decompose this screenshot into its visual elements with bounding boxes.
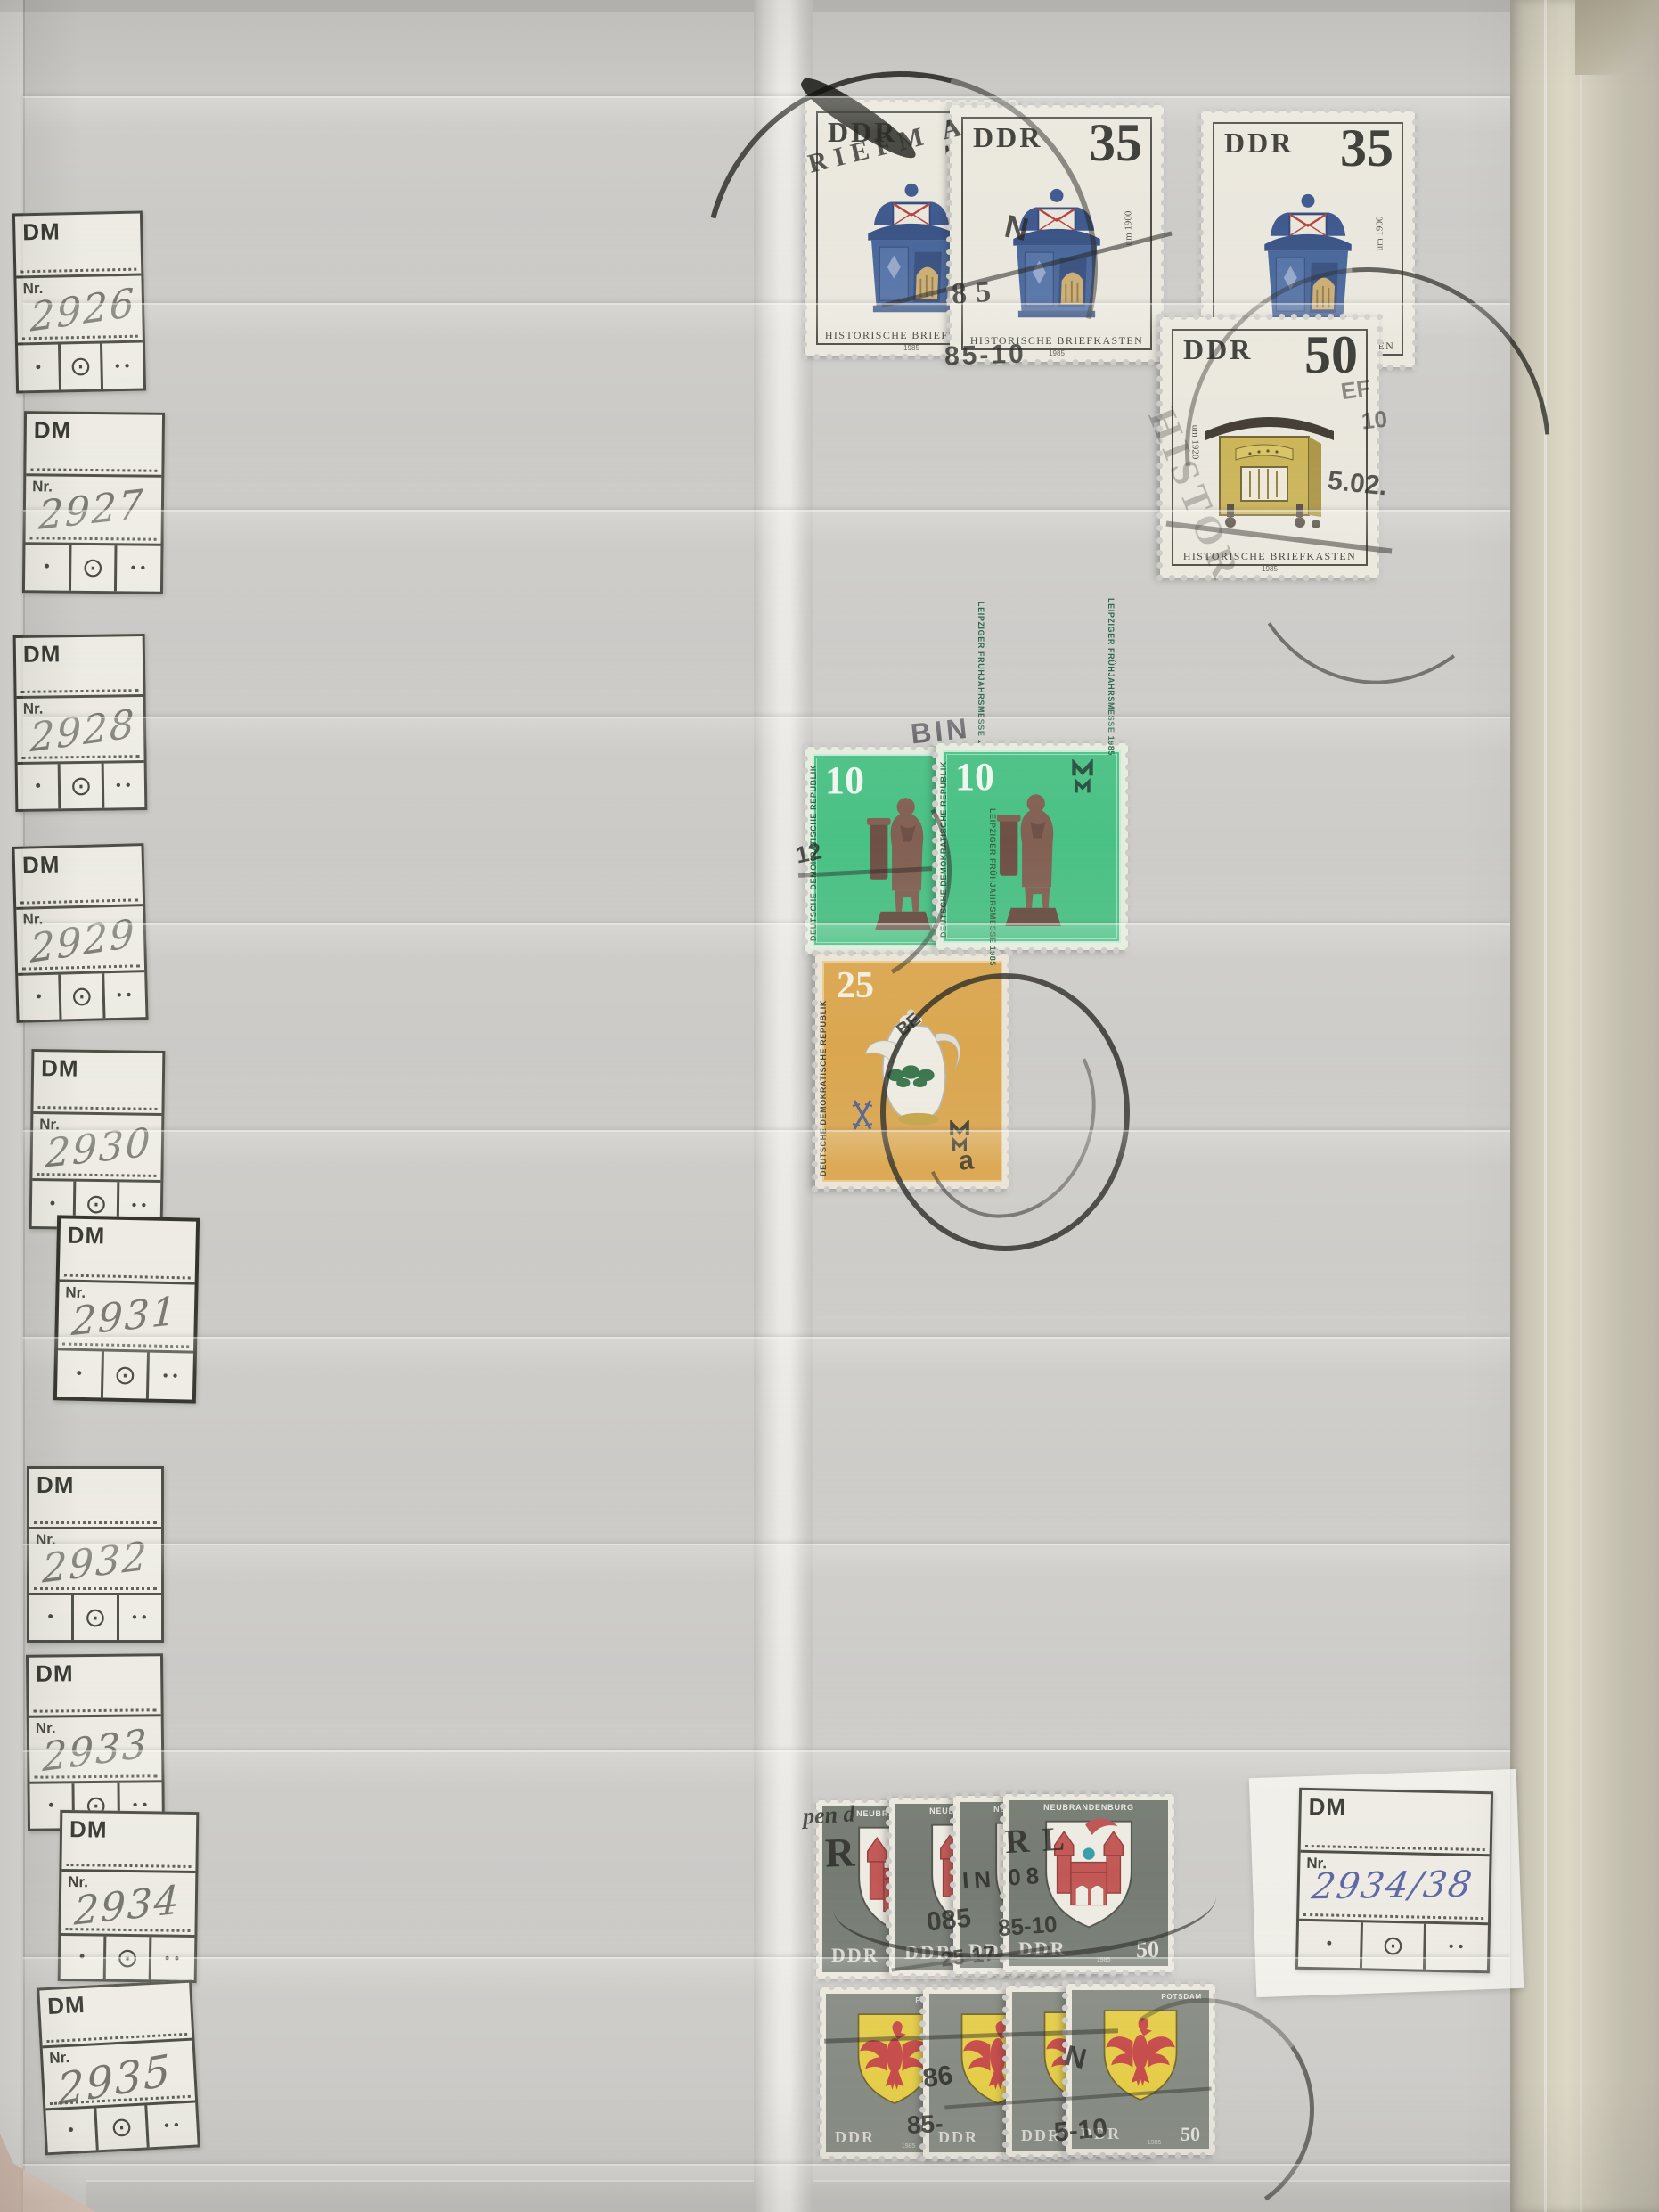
used-symbol-cell: ⊙ — [101, 1351, 148, 1398]
price-label: DM Nr. 2926 • ⊙ •• — [12, 210, 146, 393]
dotted-line — [64, 1274, 191, 1280]
stamp-messe-10: 10 — [936, 743, 1128, 950]
mint-symbol-cell: • — [25, 545, 69, 591]
mnh-symbol-cell: •• — [117, 1595, 161, 1640]
nr-box: Nr. 2926 — [16, 273, 143, 342]
dm-text: DM — [23, 640, 61, 668]
catalog-number-handwritten: 2934 — [73, 1878, 181, 1935]
mint-symbol: • — [42, 559, 51, 577]
dm-text: DM — [67, 1222, 105, 1250]
album-cover-corner — [1575, 0, 1659, 75]
country-text: DDR — [938, 2128, 978, 2147]
mailbox-illustration — [994, 187, 1119, 325]
glassine-interleaf — [1510, 0, 1659, 2212]
dm-box: DM — [29, 1469, 161, 1527]
nr-box: Nr. 2935 — [43, 2038, 195, 2109]
statue-illustration — [983, 782, 1081, 940]
dm-text: DM — [1308, 1793, 1346, 1822]
dm-box: DM — [60, 1218, 196, 1282]
condition-symbols-row: • ⊙ •• — [18, 760, 145, 809]
issue-year: 1985 — [902, 2143, 916, 2150]
dm-text: DM — [41, 1054, 79, 1083]
series-caption: HISTORISCHE BRIEFKASTEN — [1160, 550, 1379, 563]
catalog-number-handwritten: 2931 — [70, 1289, 178, 1346]
dm-box: DM — [16, 636, 143, 696]
nr-box: Nr. 2932 — [29, 1527, 161, 1593]
dotted-line — [30, 469, 157, 472]
country-text-vertical: DEUTSCHE DEMOKRATISCHE REPUBLIK — [939, 761, 948, 938]
mnh-symbol: •• — [114, 777, 134, 793]
crossed-swords-graphic — [851, 1099, 874, 1133]
dotted-line — [37, 1173, 156, 1177]
used-symbol: ⊙ — [110, 2111, 134, 2143]
issue-year: 1985 — [1148, 2140, 1162, 2146]
price-label: DM Nr. 2934/38 • ⊙ •• — [1295, 1788, 1493, 1974]
mnh-symbol-cell: •• — [1423, 1923, 1488, 1970]
catalog-number-handwritten: 2927 — [38, 481, 146, 539]
postmark-circle — [880, 973, 1130, 1251]
price-label: DM Nr. 2935 • ⊙ •• — [37, 1980, 200, 2156]
glassine-crease — [1544, 0, 1547, 2212]
mnh-symbol: •• — [163, 1951, 183, 1967]
dm-text: DM — [36, 1659, 74, 1687]
dm-box: DM — [15, 214, 141, 276]
price-label: DM Nr. 2927 • ⊙ •• — [22, 411, 165, 594]
issue-year: 1985 — [1097, 1957, 1111, 1963]
price-label: DM Nr. 2933 • ⊙ •• — [26, 1653, 165, 1831]
dotted-line — [20, 689, 138, 693]
dotted-line — [34, 1587, 157, 1590]
mnh-symbol: •• — [1447, 1939, 1467, 1955]
goethe-statue-graphic — [983, 782, 1081, 936]
catalog-number-handwritten: 2930 — [45, 1119, 152, 1176]
mnh-symbol-cell: •• — [146, 1352, 193, 1399]
mint-symbol: • — [46, 1798, 55, 1815]
dotted-line — [1303, 1913, 1483, 1919]
price-label: DM Nr. 2934 • ⊙ •• — [58, 1810, 200, 1983]
condition-symbols-row: • ⊙ •• — [61, 1933, 195, 1980]
catalog-number-handwritten: 2933 — [42, 1721, 148, 1781]
dm-box: DM — [61, 1813, 196, 1871]
nr-box: Nr. 2934 — [61, 1869, 195, 1935]
mint-symbol-cell: • — [57, 1350, 102, 1397]
mint-symbol: • — [1325, 1936, 1334, 1954]
price-label: DM Nr. 2932 • ⊙ •• — [27, 1466, 164, 1643]
mailbox-illustration — [1246, 193, 1370, 331]
dotted-line — [34, 1521, 157, 1524]
country-text-vertical: DEUTSCHE DEMOKRATISCHE REPUBLIK — [819, 1000, 828, 1176]
country-text: DDR — [973, 121, 1042, 154]
used-symbol-cell: ⊙ — [59, 974, 103, 1020]
series-caption: HISTORISCHE BRIEFKASTEN — [950, 334, 1164, 348]
mint-symbol: • — [46, 1609, 55, 1626]
condition-symbols-row: • ⊙ •• — [18, 970, 145, 1020]
price-label: DM Nr. 2929 • ⊙ •• — [12, 843, 148, 1023]
mint-symbol: • — [34, 358, 43, 376]
used-symbol: ⊙ — [69, 770, 93, 801]
used-symbol: ⊙ — [70, 980, 94, 1012]
condition-symbols-row: • ⊙ •• — [57, 1348, 193, 1399]
dotted-line — [34, 1709, 157, 1713]
country-text: DDR — [1021, 2126, 1061, 2145]
mint-symbol-cell: • — [18, 975, 60, 1020]
mnh-symbol: •• — [130, 1610, 150, 1626]
city-name: NEUBRANDENBURG — [1009, 1803, 1168, 1812]
mnh-symbol: •• — [115, 987, 135, 1004]
mint-symbol: • — [34, 988, 44, 1006]
dotted-line — [30, 537, 157, 540]
denomination: 35 — [1340, 118, 1393, 179]
era-note: um 1900 — [1375, 217, 1385, 251]
mnh-symbol-cell: •• — [144, 2103, 197, 2148]
price-label: DM Nr. 2931 • ⊙ •• — [53, 1215, 200, 1403]
catalog-number-handwritten: 2926 — [30, 280, 136, 341]
nr-box: Nr. 2933 — [29, 1714, 162, 1782]
catalog-number-handwritten: 2934/38 — [1309, 1864, 1476, 1908]
event-text-vertical: LEIPZIGER FRÜHJAHRSMESSE 1985 — [977, 602, 985, 759]
dotted-line — [34, 1775, 157, 1779]
mnh-symbol-cell: •• — [102, 972, 146, 1018]
mnh-symbol-cell: •• — [101, 763, 144, 807]
meissen-swords-mark — [851, 1099, 874, 1137]
mint-symbol: • — [75, 1365, 84, 1383]
catalog-number-handwritten: 2929 — [30, 911, 136, 972]
country-text: DDR — [1224, 127, 1294, 160]
mint-symbol-cell: • — [1298, 1921, 1361, 1968]
mnh-symbol-cell: •• — [100, 343, 143, 389]
mailbox-graphic — [1246, 193, 1370, 326]
country-text: DDR — [831, 1944, 879, 1967]
mnh-symbol: •• — [161, 1368, 181, 1384]
dotted-line — [22, 755, 140, 759]
country-text: DDR — [835, 2128, 875, 2147]
used-symbol: ⊙ — [81, 553, 104, 584]
denomination: 35 — [1089, 112, 1142, 174]
condition-symbols-row: • ⊙ •• — [1298, 1918, 1488, 1970]
country-text: DDR — [1183, 333, 1253, 366]
mnh-symbol-cell: •• — [149, 1937, 195, 1980]
dm-text: DM — [22, 851, 61, 880]
mnh-symbol: •• — [113, 357, 133, 373]
nr-box: Nr. 2927 — [26, 474, 162, 544]
mint-symbol: • — [33, 778, 42, 796]
stamp-print-area: POTSDAM DDR 50 1985 — [1072, 1990, 1209, 2149]
stamp-wappen-potsdam: POTSDAM DDR 50 1985 — [1066, 1984, 1215, 2155]
mint-symbol-cell: • — [61, 1936, 104, 1979]
nr-box: Nr. 2930 — [32, 1111, 161, 1181]
mint-symbol-cell: • — [29, 1595, 71, 1640]
glassine-crease — [1580, 0, 1582, 2212]
nr-box: Nr. 2934/38 — [1299, 1850, 1490, 1922]
mnh-symbol-cell: •• — [114, 545, 160, 592]
era-note: um 1920 — [1189, 425, 1200, 460]
denomination: 50 — [1304, 324, 1358, 386]
catalog-number-handwritten: 2932 — [42, 1534, 149, 1593]
dotted-line — [62, 1343, 189, 1348]
used-symbol: ⊙ — [69, 351, 93, 383]
dm-text: DM — [46, 1991, 86, 2020]
nr-box: Nr. 2928 — [17, 694, 144, 762]
nr-box: Nr. 2929 — [16, 904, 144, 973]
condition-symbols-row: • ⊙ •• — [18, 340, 143, 391]
mint-symbol-cell: • — [18, 345, 59, 391]
mint-symbol: • — [78, 1948, 86, 1966]
stamp-print-area: 10 — [943, 750, 1121, 943]
used-symbol-cell: ⊙ — [69, 545, 115, 591]
issue-year: 1985 — [950, 349, 1164, 357]
mnh-symbol: •• — [130, 1197, 150, 1213]
mailbox-graphic — [994, 187, 1119, 321]
letterbox-wagon-graphic — [1200, 399, 1339, 533]
denomination: 50 — [1181, 2123, 1200, 2146]
country-text: DDR — [1081, 2125, 1121, 2143]
condition-symbols-row: • ⊙ •• — [25, 542, 161, 592]
price-label: DM Nr. 2928 • ⊙ •• — [13, 634, 148, 812]
used-symbol-cell: ⊙ — [103, 1937, 150, 1980]
city-name: POTSDAM — [1072, 1993, 1209, 2001]
event-text-vertical: LEIPZIGER FRÜHJAHRSMESSE 1985 — [988, 808, 997, 966]
dm-text: DM — [34, 416, 72, 444]
dotted-line — [20, 899, 138, 905]
used-symbol-cell: ⊙ — [58, 344, 102, 390]
dm-text: DM — [37, 1471, 74, 1499]
mint-symbol: • — [48, 1195, 57, 1213]
event-text-vertical: LEIPZIGER FRÜHJAHRSMESSE 1985 — [1107, 598, 1116, 756]
letterbox-wagon-illustration — [1200, 399, 1339, 537]
dm-box: DM — [1301, 1790, 1491, 1855]
used-symbol: ⊙ — [1382, 1930, 1405, 1962]
dm-box: DM — [29, 1656, 161, 1716]
mint-symbol-cell: • — [45, 2109, 95, 2153]
stamp-album-photo: DDR 35 um 1900 HISTORISCHE BRIEFKASTEN 1… — [0, 0, 1659, 2212]
used-symbol-cell: ⊙ — [58, 764, 102, 808]
dm-text: DM — [69, 1815, 108, 1844]
price-label: DM Nr. 2930 • ⊙ •• — [29, 1049, 166, 1231]
condition-symbols-row: • ⊙ •• — [29, 1593, 161, 1640]
used-symbol: ⊙ — [84, 1602, 106, 1634]
dm-box: DM — [26, 414, 162, 475]
dotted-line — [20, 267, 136, 273]
used-symbol-cell: ⊙ — [94, 2106, 146, 2151]
dm-box: DM — [15, 846, 143, 907]
used-symbol: ⊙ — [114, 1359, 137, 1391]
used-symbol-cell: ⊙ — [71, 1595, 116, 1640]
catalog-number-handwritten: 2928 — [30, 701, 136, 762]
issue-year: 1985 — [1160, 565, 1379, 573]
mint-symbol-cell: • — [18, 765, 59, 809]
mint-symbol: • — [66, 2121, 76, 2139]
stamp-briefkasten-35: DDR 35 um 1900 HISTORISCHE BRIEFKASTEN 1… — [950, 105, 1164, 362]
dotted-line — [66, 1864, 191, 1868]
used-symbol-cell: ⊙ — [1360, 1922, 1425, 1970]
used-symbol: ⊙ — [116, 1942, 139, 1973]
nr-box: Nr. 2931 — [58, 1279, 195, 1350]
mnh-symbol: •• — [129, 561, 149, 577]
dm-text: DM — [22, 217, 61, 246]
dotted-line — [37, 1106, 157, 1110]
country-text-vertical: DEUTSCHE DEMOKRATISCHE REPUBLIK — [809, 765, 818, 941]
dm-box: DM — [33, 1052, 162, 1113]
dm-box: DM — [39, 1983, 192, 2046]
mnh-symbol: •• — [162, 2117, 183, 2134]
